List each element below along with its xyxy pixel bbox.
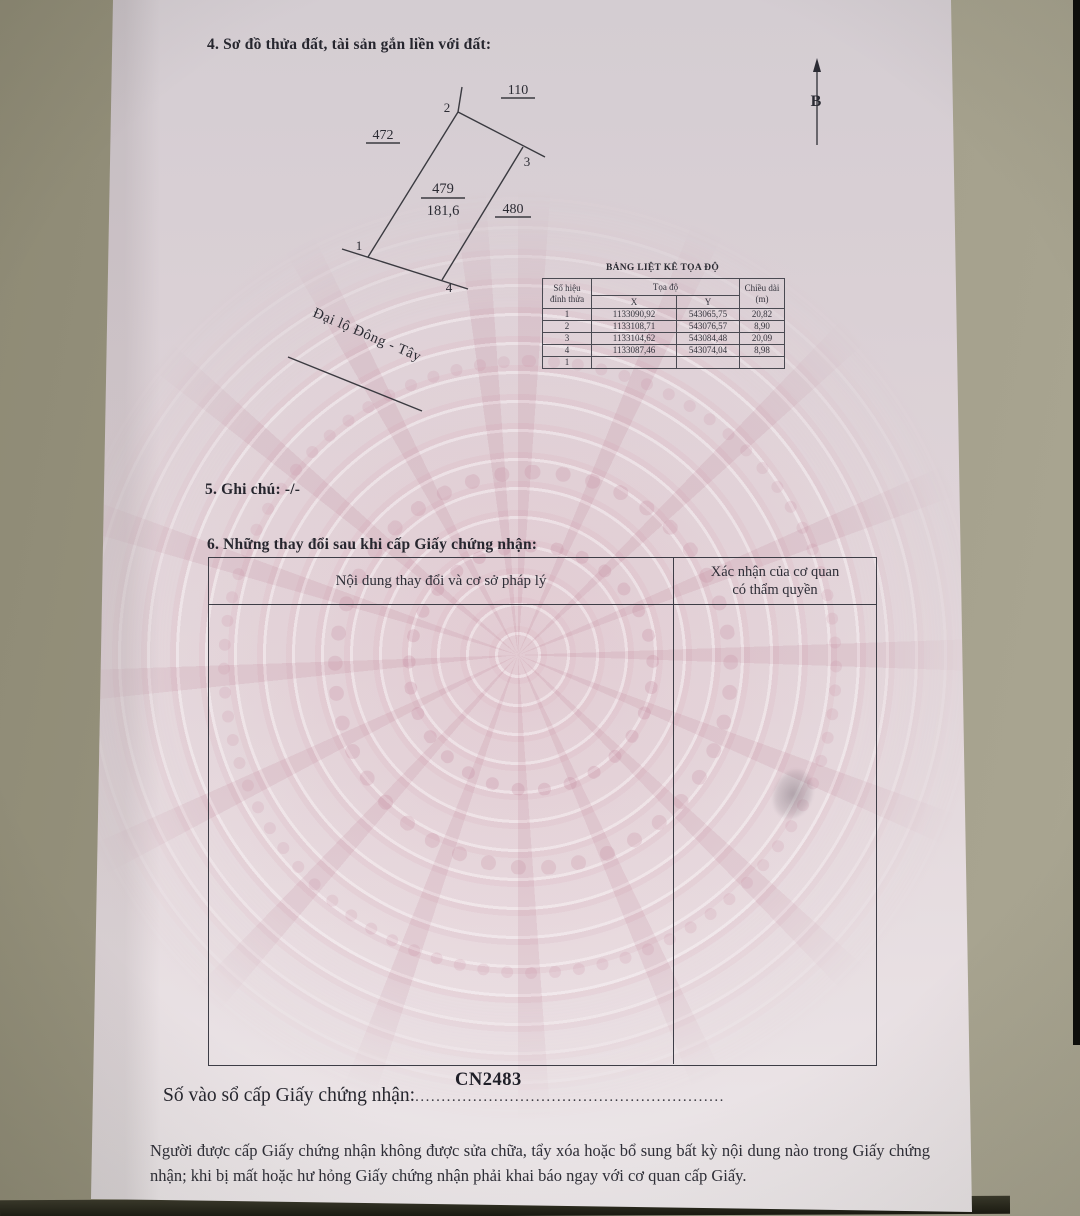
changes-table-divider <box>673 605 674 1064</box>
changes-table: Nội dung thay đổi và cơ sở pháp lý Xác n… <box>208 557 877 1066</box>
registry-dotted-line: ........................................… <box>415 1089 725 1105</box>
plot-diagram: B 2 110 472 3 479 181,6 480 1 4 Đại lộ Đ… <box>250 50 850 430</box>
col-x-header: X <box>592 296 677 309</box>
north-label: B <box>811 93 822 110</box>
registry-label: Số vào sổ cấp Giấy chứng nhận: <box>163 1085 415 1106</box>
coord-row: 1 1133090,92 543065,75 20,82 <box>543 309 785 321</box>
coord-row: 1 <box>543 357 785 369</box>
registry-line: Số vào sổ cấp Giấy chứng nhận:..........… <box>163 1085 923 1107</box>
footer-notice: Người được cấp Giấy chứng nhận không đượ… <box>150 1139 930 1189</box>
col-change-content-header: Nội dung thay đổi và cơ sở pháp lý <box>209 558 674 604</box>
north-arrow-head <box>813 58 821 72</box>
changes-table-header: Nội dung thay đổi và cơ sở pháp lý Xác n… <box>209 558 876 605</box>
section6-title: 6. Những thay đổi sau khi cấp Giấy chứng… <box>207 536 537 554</box>
parcel-side-2-3 <box>458 112 545 157</box>
road-name: Đại lộ Đông - Tây <box>310 305 423 365</box>
col-vertex-header: Số hiệu đỉnh thửa <box>543 279 592 309</box>
coord-header-row: Số hiệu đỉnh thửa Tọa độ Chiều dài (m) <box>543 279 785 296</box>
coord-table-title: BẢNG LIỆT KÊ TỌA ĐỘ <box>542 263 783 273</box>
road-edge-far <box>288 357 422 411</box>
adjacent-plot-472: 472 <box>373 128 394 143</box>
section5-value: -/- <box>285 481 300 498</box>
section5-label: 5. Ghi chú: <box>205 481 281 498</box>
coord-row: 2 1133108,71 543076,57 8,90 <box>543 321 785 333</box>
adjacent-plot-110: 110 <box>508 83 528 98</box>
coord-row: 3 1133104,62 543084,48 20,09 <box>543 333 785 345</box>
col-coords-header: Tọa độ <box>592 279 740 296</box>
photo-edge-strip <box>1073 0 1080 1045</box>
vertex-4-label: 4 <box>446 280 453 295</box>
certificate-photo: 4. Sơ đồ thửa đất, tài sản gắn liền với … <box>0 0 1080 1216</box>
coord-row: 4 1133087,46 543074,04 8,98 <box>543 345 785 357</box>
parcel-area: 181,6 <box>427 203 460 219</box>
col-y-header: Y <box>677 296 740 309</box>
boundary-extension-top <box>458 87 462 112</box>
col-length-header: Chiều dài (m) <box>740 279 785 309</box>
section5-note: 5. Ghi chú: -/- <box>205 481 300 499</box>
certificate-page: 4. Sơ đồ thửa đất, tài sản gắn liền với … <box>0 0 1080 1216</box>
coord-table: Số hiệu đỉnh thửa Tọa độ Chiều dài (m) X… <box>542 278 785 369</box>
adjacent-plot-480: 480 <box>503 202 524 217</box>
vertex-2-label: 2 <box>444 100 451 115</box>
parcel-number: 479 <box>432 181 454 197</box>
vertex-1-label: 1 <box>356 238 363 253</box>
registry-number: CN2483 <box>455 1070 522 1091</box>
vertex-3-label: 3 <box>524 154 531 169</box>
col-authority-header: Xác nhận của cơ quan có thẩm quyền <box>674 558 876 604</box>
changes-table-body <box>209 605 876 1064</box>
